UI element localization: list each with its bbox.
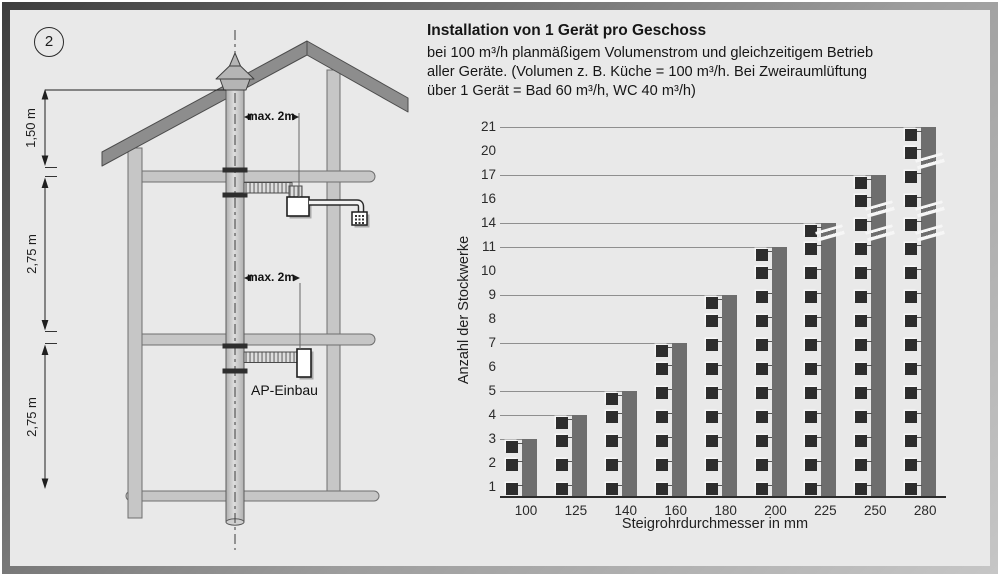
device-connector [618, 395, 623, 396]
device-connector [568, 419, 573, 420]
grid-line-7 [500, 343, 672, 344]
device-connector [917, 341, 922, 342]
device-connector [917, 485, 922, 486]
device-connector [768, 461, 773, 462]
device-connector [867, 293, 872, 294]
y-tick-1: 1 [460, 479, 496, 494]
device-square [706, 459, 718, 471]
device-square [855, 315, 867, 327]
device-square [706, 363, 718, 375]
device-square [905, 219, 917, 231]
device-square [756, 387, 768, 399]
device-square [706, 483, 718, 495]
device-square [905, 171, 917, 183]
device-connector [817, 485, 822, 486]
device-connector [618, 437, 623, 438]
device-square [556, 417, 568, 429]
device-connector [718, 317, 723, 318]
device-square [706, 315, 718, 327]
device-square [905, 315, 917, 327]
device-connector [817, 461, 822, 462]
device-square [905, 339, 917, 351]
device-connector [718, 341, 723, 342]
device-square [905, 387, 917, 399]
device-connector [668, 461, 673, 462]
x-axis-line [500, 496, 946, 499]
device-connector [718, 461, 723, 462]
device-square [606, 459, 618, 471]
grid-line-21 [500, 127, 921, 128]
device-square [805, 411, 817, 423]
device-connector [867, 461, 872, 462]
device-connector [768, 293, 773, 294]
grid-line-14 [500, 223, 821, 224]
device-square [905, 267, 917, 279]
device-connector [917, 197, 922, 198]
x-tick-100: 100 [503, 503, 549, 518]
device-connector [768, 269, 773, 270]
device-square [606, 411, 618, 423]
bar-125 [572, 415, 587, 497]
bar-chart: 1234567891011141617202110012514016018020… [0, 0, 1000, 576]
device-connector [817, 293, 822, 294]
device-square [606, 483, 618, 495]
device-connector [768, 485, 773, 486]
device-connector [718, 413, 723, 414]
device-connector [917, 149, 922, 150]
device-connector [668, 485, 673, 486]
device-square [805, 483, 817, 495]
device-connector [917, 131, 922, 132]
device-connector [817, 341, 822, 342]
device-square [756, 363, 768, 375]
device-square [805, 291, 817, 303]
device-square [706, 297, 718, 309]
device-connector [917, 437, 922, 438]
device-square [805, 459, 817, 471]
device-connector [867, 317, 872, 318]
device-connector [917, 461, 922, 462]
grid-line-3 [500, 439, 522, 440]
device-connector [718, 437, 723, 438]
device-connector [518, 443, 523, 444]
device-square [706, 339, 718, 351]
device-square [656, 435, 668, 447]
device-connector [867, 413, 872, 414]
device-square [756, 291, 768, 303]
device-connector [618, 413, 623, 414]
device-connector [867, 221, 872, 222]
bar-160 [672, 343, 687, 497]
y-axis-title: Anzahl der Stockwerke [456, 200, 472, 420]
device-square [805, 435, 817, 447]
device-connector [867, 341, 872, 342]
device-square [855, 177, 867, 189]
device-square [706, 411, 718, 423]
device-square [905, 243, 917, 255]
device-square [756, 249, 768, 261]
device-connector [768, 341, 773, 342]
device-square [706, 387, 718, 399]
device-square [506, 483, 518, 495]
device-connector [718, 299, 723, 300]
device-square [556, 459, 568, 471]
device-square [556, 435, 568, 447]
device-square [855, 483, 867, 495]
device-square [905, 147, 917, 159]
device-square [756, 339, 768, 351]
device-square [855, 435, 867, 447]
grid-line-4 [500, 415, 572, 416]
device-square [756, 267, 768, 279]
device-connector [668, 347, 673, 348]
device-square [855, 195, 867, 207]
y-tick-20: 20 [460, 143, 496, 158]
device-connector [817, 227, 822, 228]
device-connector [917, 389, 922, 390]
device-connector [518, 461, 523, 462]
device-connector [668, 365, 673, 366]
device-connector [917, 413, 922, 414]
device-square [656, 411, 668, 423]
device-connector [817, 437, 822, 438]
bar-180 [722, 295, 737, 497]
device-square [905, 435, 917, 447]
device-connector [867, 365, 872, 366]
device-square [606, 393, 618, 405]
device-square [905, 129, 917, 141]
device-square [855, 363, 867, 375]
x-tick-280: 280 [902, 503, 948, 518]
device-square [855, 339, 867, 351]
device-square [855, 219, 867, 231]
device-square [756, 411, 768, 423]
figure-panel: 2 1,50 m 2,75 m 2,75 m max. 2m max. 2m A… [0, 0, 1000, 576]
device-connector [867, 197, 872, 198]
device-connector [768, 437, 773, 438]
device-square [506, 441, 518, 453]
device-connector [718, 485, 723, 486]
device-connector [768, 413, 773, 414]
device-connector [867, 389, 872, 390]
x-axis-title: Steigrohrdurchmesser in mm [565, 516, 865, 532]
device-connector [817, 245, 822, 246]
device-connector [668, 413, 673, 414]
device-connector [718, 365, 723, 366]
device-square [805, 339, 817, 351]
device-square [756, 483, 768, 495]
device-square [905, 483, 917, 495]
device-square [855, 459, 867, 471]
device-connector [618, 461, 623, 462]
device-square [656, 459, 668, 471]
device-square [905, 363, 917, 375]
device-connector [817, 389, 822, 390]
device-square [805, 387, 817, 399]
device-connector [768, 251, 773, 252]
grid-line-5 [500, 391, 622, 392]
device-connector [917, 245, 922, 246]
device-connector [817, 413, 822, 414]
device-connector [768, 317, 773, 318]
device-square [756, 315, 768, 327]
device-connector [568, 461, 573, 462]
device-square [855, 267, 867, 279]
device-connector [917, 269, 922, 270]
device-connector [867, 437, 872, 438]
device-square [656, 483, 668, 495]
device-connector [568, 437, 573, 438]
bar-140 [622, 391, 637, 497]
device-connector [917, 173, 922, 174]
device-connector [718, 389, 723, 390]
device-connector [568, 485, 573, 486]
device-square [905, 459, 917, 471]
y-tick-17: 17 [460, 167, 496, 182]
device-square [656, 345, 668, 357]
device-connector [867, 245, 872, 246]
device-connector [817, 317, 822, 318]
grid-line-17 [500, 175, 871, 176]
device-connector [867, 179, 872, 180]
device-connector [817, 365, 822, 366]
device-square [756, 435, 768, 447]
device-connector [618, 485, 623, 486]
y-tick-2: 2 [460, 455, 496, 470]
device-connector [917, 365, 922, 366]
grid-line-11 [500, 247, 772, 248]
bar-280 [921, 127, 936, 497]
device-square [855, 291, 867, 303]
device-square [855, 387, 867, 399]
bar-200 [772, 247, 787, 497]
device-connector [917, 221, 922, 222]
device-square [805, 363, 817, 375]
y-tick-3: 3 [460, 431, 496, 446]
grid-line-9 [500, 295, 722, 296]
device-square [855, 243, 867, 255]
device-square [656, 363, 668, 375]
device-square [656, 387, 668, 399]
device-square [805, 315, 817, 327]
device-square [756, 459, 768, 471]
device-connector [917, 293, 922, 294]
device-connector [668, 437, 673, 438]
device-connector [518, 485, 523, 486]
device-connector [668, 389, 673, 390]
device-connector [867, 269, 872, 270]
device-connector [867, 485, 872, 486]
device-square [905, 411, 917, 423]
device-connector [917, 317, 922, 318]
bar-250 [871, 175, 886, 497]
bar-100 [522, 439, 537, 497]
device-square [905, 291, 917, 303]
device-square [805, 267, 817, 279]
device-connector [768, 389, 773, 390]
y-tick-21: 21 [460, 119, 496, 134]
device-square [706, 435, 718, 447]
bar-225 [821, 223, 836, 497]
device-square [855, 411, 867, 423]
device-square [905, 195, 917, 207]
device-square [805, 243, 817, 255]
device-square [506, 459, 518, 471]
device-square [606, 435, 618, 447]
device-connector [768, 365, 773, 366]
device-connector [817, 269, 822, 270]
device-square [556, 483, 568, 495]
